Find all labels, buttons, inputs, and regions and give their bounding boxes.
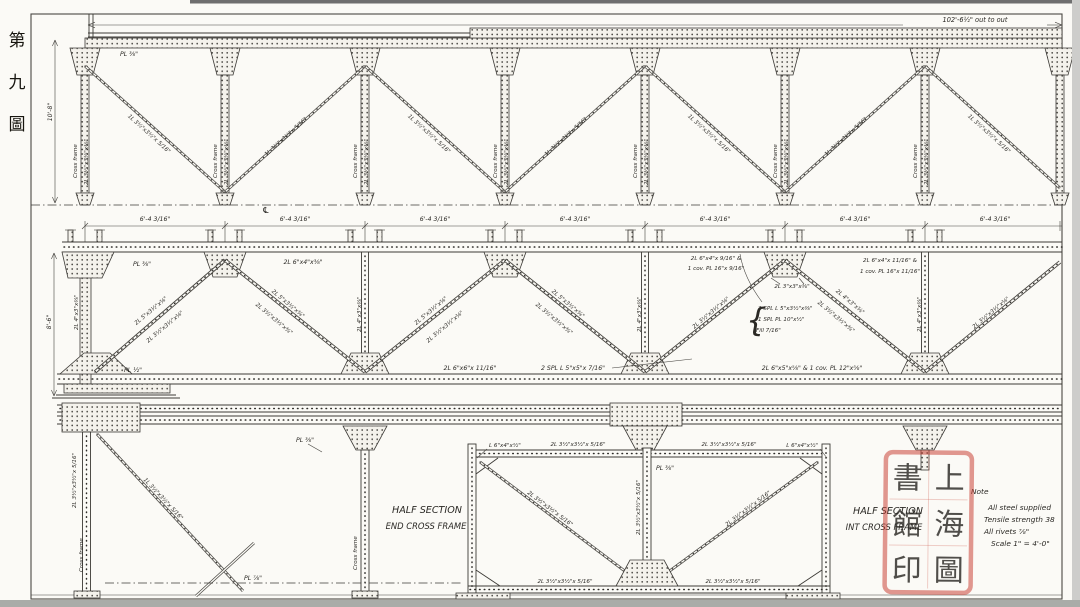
diagonal-section-label: 1L 3½"x3½"x 5/16" xyxy=(142,476,185,521)
lateral-section-label: 1L 3½"x3½"x 5/16" xyxy=(406,113,452,155)
post-section-label: 2L 3½"x3½"x⅜" xyxy=(923,138,930,185)
note-line: All rivets ⅞" xyxy=(983,527,1029,536)
caption-char-1: 第 xyxy=(9,31,26,51)
panel-dimension: 6'-4 3/16" xyxy=(980,216,1011,223)
lateral-section-label: 1L 3½"x3½"x 5/16" xyxy=(263,116,309,158)
scan-edge-top xyxy=(190,0,1080,4)
post-section-label: 2L 3½"x3½"x 5/16" xyxy=(635,479,642,535)
top-lateral-bracing-plan: 102'-6½" out to out 10'-8" PL ⅜" Cross f… xyxy=(31,14,1075,215)
seal-char: 上 xyxy=(935,462,965,497)
corner-angle-label: L 6"x4"x½" xyxy=(489,442,521,449)
end-cross-frame-section: PL ⅞" PL ⅜" 1L 3½"x3½"x 5/16" 2L 3½"x3½"… xyxy=(71,432,467,598)
plan-height-label: 10'-8" xyxy=(47,103,54,122)
diagonal-section-label: 2L 5"x3½"x⅜" xyxy=(270,288,306,320)
splice-line-2: 1 SPL PL 10"x½" xyxy=(758,316,805,323)
plan-post-1: Cross frame 2L 3½"x3½"x⅜" xyxy=(70,48,100,205)
lateral-section-label: 1L 3½"x3½"x 5/16" xyxy=(126,113,172,155)
lateral-section-label: 1L 3½"x3½"x 5/16" xyxy=(543,116,589,158)
note-line: Scale 1" = 4'-0" xyxy=(991,539,1050,548)
plate-label: PL ⅞" xyxy=(244,575,262,582)
plate-label: PL ½" xyxy=(124,366,142,374)
end-frame-title-2: END CROSS FRAME xyxy=(386,521,468,531)
post-name-label: Cross frame xyxy=(913,144,919,178)
panel-dimension-row: 6'-4 3/16" 6'-4 3/16" 6'-4 3/16" 6'-4 3/… xyxy=(85,216,1062,231)
caption-char-3: 圖 xyxy=(9,115,26,135)
library-seal: 上 海 圖 書 館 印 xyxy=(885,452,972,593)
diagonal-section-label: 2L 3½"x3½"x 5/16" xyxy=(724,489,773,528)
seal-char: 館 xyxy=(892,507,922,542)
seal-char: 圖 xyxy=(934,554,964,589)
seal-char: 印 xyxy=(892,553,922,588)
centerline-symbol: ℄ xyxy=(262,205,270,215)
post-name-label: Cross frame xyxy=(79,538,85,572)
seal-char: 書 xyxy=(893,461,923,496)
post-section-label: 2L 3½"x3½"x⅜" xyxy=(363,138,370,185)
bottom-chord-label: 2L 6"x6"x 11/16" xyxy=(444,365,497,372)
corner-angle-label: L 6"x4"x½" xyxy=(786,442,818,449)
chord-section-label: 2L 3½"x3½"x 5/16" xyxy=(705,578,761,585)
lateral-section-label: 1L 3½"x3½"x 5/16" xyxy=(823,116,869,158)
note-block: Note All steel supplied Tensile strength… xyxy=(971,487,1055,548)
panel-dimension: 6'-4 3/16" xyxy=(140,216,171,223)
post-section-label: 2L 3½"x3½"x⅜" xyxy=(503,138,510,185)
caption-char-2: 九 xyxy=(9,73,26,93)
vertical-section-label: 2L 4"x3"x⅜" xyxy=(357,296,363,332)
int-cross-frame-section: L 6"x4"x½" L 6"x4"x½" 2L 3½"x3½"x 5/16" … xyxy=(456,441,923,599)
plan-post-8 xyxy=(1045,48,1075,205)
drawing-canvas: 第 九 圖 102'-6½" out to out 10'-8" PL ⅜" C… xyxy=(0,0,1080,607)
post-name-label: Cross frame xyxy=(493,144,499,178)
vertical-section-label: 2L 4"x3"x⅜" xyxy=(637,296,643,332)
plate-label: PL ⅜" xyxy=(656,465,674,472)
top-chord-label: 2L 6"x4"x 9/16" & xyxy=(691,256,742,262)
plan-height-dimension: 10'-8" xyxy=(47,40,58,203)
scan-edge-bottom xyxy=(0,600,1080,607)
elevation-height-label: 8'-6" xyxy=(46,315,53,330)
vertical-section-label: 2L 4"x3"x⅜" xyxy=(917,296,923,332)
elevation-height-dimension: 8'-6" xyxy=(46,253,57,396)
top-chord-label: 2L 6"x4"x⅜" xyxy=(283,259,322,266)
panel-dimension: 6'-4 3/16" xyxy=(700,216,731,223)
overall-dimension: 102'-6½" out to out xyxy=(88,16,1062,28)
chord-section-label: 2L 3½"x3½"x 5/16" xyxy=(550,441,606,448)
figure-caption: 第 九 圖 xyxy=(9,31,26,135)
post-section-label: 2L 3½"x3½"x⅜" xyxy=(783,138,790,185)
diagonal-section-label: 2L 3½"x3½"x 5/16" xyxy=(526,489,575,528)
diagonal-section-label: 2L 3½"x3½"x⅜" xyxy=(971,295,1011,330)
plan-post-3: Cross frame 2L 3½"x3½"x⅜" xyxy=(350,48,380,205)
top-chord-label: 1 cov. PL 16"x 11/16" xyxy=(860,269,920,275)
note-line: All steel supplied xyxy=(987,503,1051,512)
scanned-bridge-drawing-page: 第 九 圖 102'-6½" out to out 10'-8" PL ⅜" C… xyxy=(0,0,1080,607)
lateral-section-label: 1L 3½"x3½"x 5/16" xyxy=(686,113,732,155)
diagonal-section-label: 2L 5"x3½"x⅜" xyxy=(550,288,586,320)
post-name-label: Cross frame xyxy=(773,144,779,178)
bottom-chord-label: 2L 6"x5"x⅝" & 1 cov. PL 12"x⅝" xyxy=(762,365,863,372)
post-section-label: 2L 3½"x3½"x⅜" xyxy=(643,138,650,185)
apex-tie-label: 2L 3"x3"x⅜" xyxy=(774,284,810,290)
plan-post-7: Cross frame 2L 3½"x3½"x⅜" xyxy=(910,48,940,205)
panel-dimension: 6'-4 3/16" xyxy=(420,216,451,223)
diagonal-section-label: 2L 3½"x3½"x⅜" xyxy=(691,295,731,330)
top-chord-label: 1 cov. PL 16"x 9/16" xyxy=(688,266,745,272)
post-section-label: 2L 3½"x3½"x 5/16" xyxy=(71,452,78,508)
post-name-label: Cross frame xyxy=(73,144,79,178)
seal-char: 海 xyxy=(934,508,964,543)
post-section-label: 2L 3½"x3½"x⅜" xyxy=(223,138,230,185)
panel-dimension: 6'-4 3/16" xyxy=(280,216,311,223)
post-name-label: Cross frame xyxy=(353,536,359,570)
chord-section-label: 2L 3½"x3½"x 5/16" xyxy=(701,441,757,448)
overall-dimension-label: 102'-6½" out to out xyxy=(943,16,1008,24)
scan-edge-right xyxy=(1072,0,1080,601)
post-name-label: Cross frame xyxy=(633,144,639,178)
truss-elevation: 8'-6" PL ⅜" PL ½" 2L 6"x4"x⅜" 2L 6"x4"x … xyxy=(46,221,1062,398)
chord-section-label: 2L 3½"x3½"x 5/16" xyxy=(537,578,593,585)
panel-point-seats xyxy=(65,221,945,242)
post-section-label: 2L 3½"x3½"x⅜" xyxy=(83,138,90,185)
note-line: Tensile strength 38 xyxy=(984,515,1055,524)
post-name-label: Cross frame xyxy=(353,144,359,178)
lateral-section-label: 1L 3½"x3½"x 5/16" xyxy=(966,113,1012,155)
plate-label: PL ⅜" xyxy=(133,261,151,268)
post-name-label: Cross frame xyxy=(213,144,219,178)
bottom-chord-label: 2 SPL L 5"x5"x 7/16" xyxy=(541,365,605,372)
panel-dimension: 6'-4 3/16" xyxy=(560,216,591,223)
plan-post-5: Cross frame 2L 3½"x3½"x⅜" xyxy=(630,48,660,205)
plate-label: PL ⅜" xyxy=(296,437,314,444)
top-chord-label: 2L 6"x4"x 11/16" & xyxy=(863,258,918,264)
splice-line-1: 2 SPL L 5"x3½"x⅜" xyxy=(758,305,813,312)
plan-plate-label: PL ⅜" xyxy=(120,51,138,58)
vertical-section-label: 2L 4"x3"x⅜" xyxy=(74,294,80,330)
panel-dimension: 6'-4 3/16" xyxy=(840,216,871,223)
splice-line-3: Fill 7/16" xyxy=(756,328,781,334)
end-frame-title-1: HALF SECTION xyxy=(392,505,462,516)
